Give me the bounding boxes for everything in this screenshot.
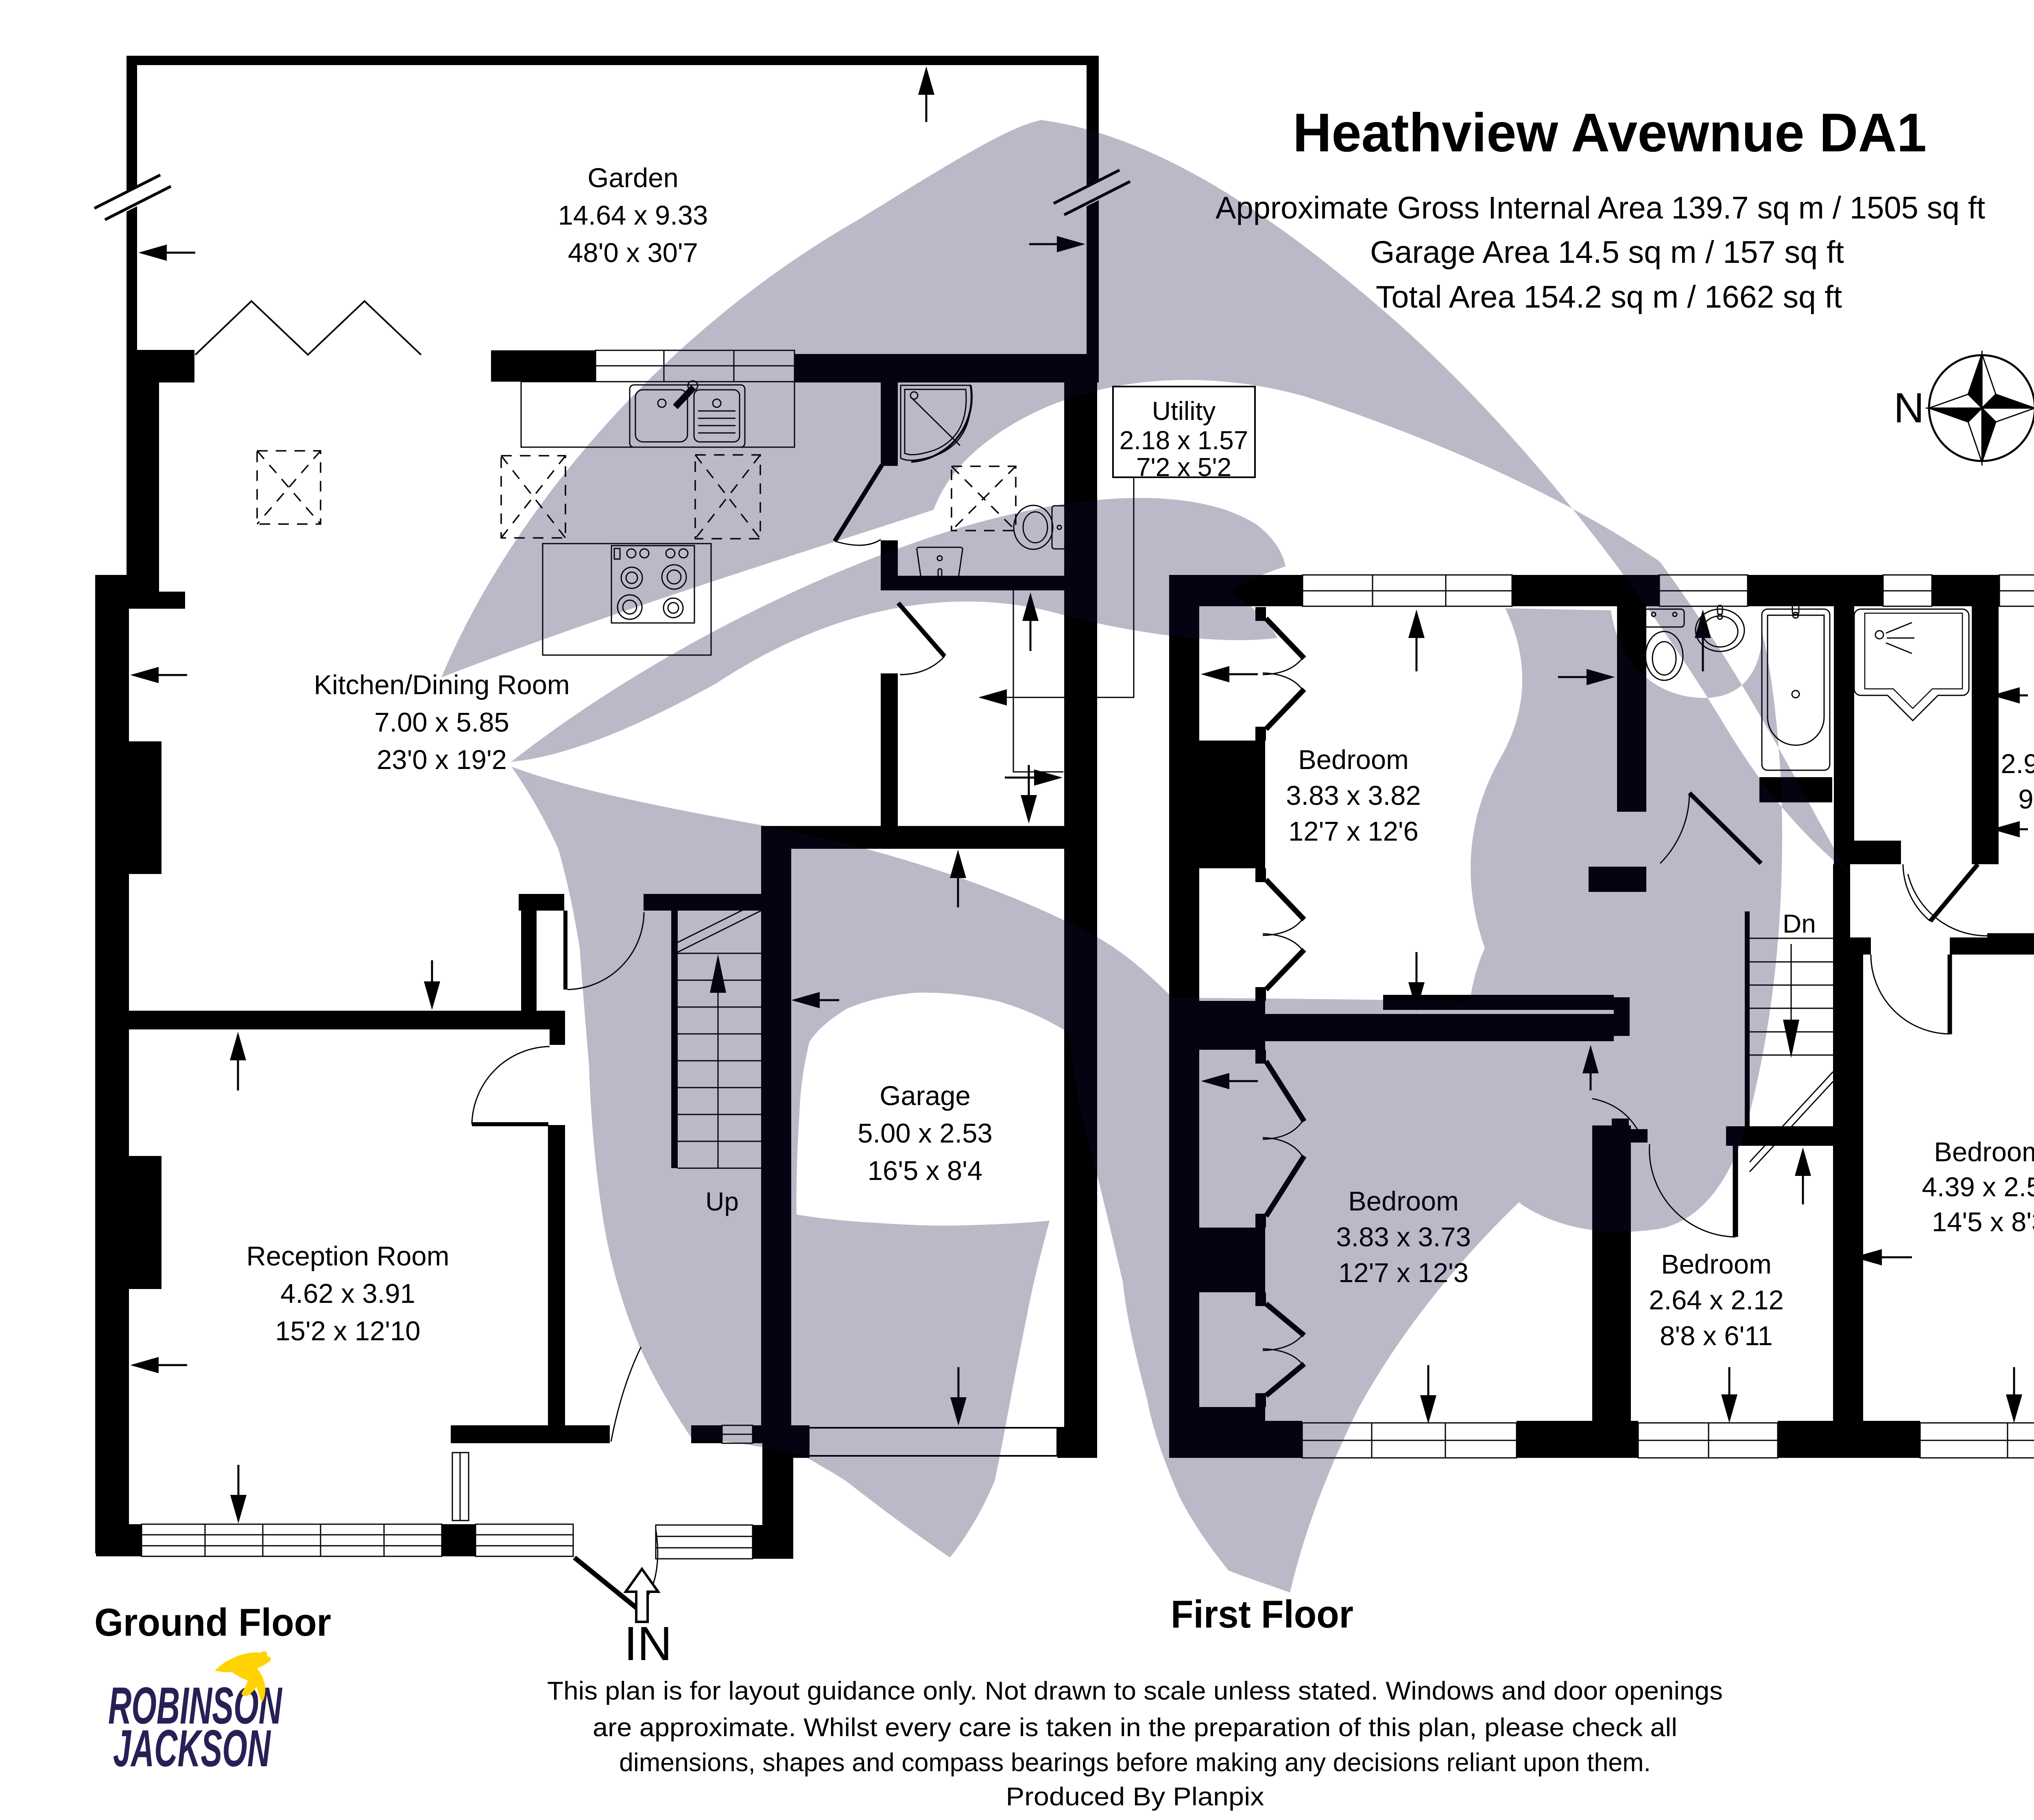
svg-text:7.00 x 5.85: 7.00 x 5.85 — [374, 707, 509, 738]
svg-text:Bedroom: Bedroom — [1298, 745, 1409, 775]
svg-text:This plan is for layout guidan: This plan is for layout guidance only. N… — [547, 1677, 1723, 1705]
svg-text:4.39 x 2.51: 4.39 x 2.51 — [1922, 1172, 2034, 1202]
svg-text:IN: IN — [624, 1617, 672, 1671]
svg-text:JACKSON: JACKSON — [113, 1719, 271, 1778]
svg-text:Ground Floor: Ground Floor — [94, 1601, 331, 1644]
svg-text:14.64 x 9.33: 14.64 x 9.33 — [558, 200, 708, 231]
svg-text:Utility: Utility — [1152, 396, 1216, 426]
svg-text:Garden: Garden — [587, 163, 678, 193]
svg-text:2.97 x 1.40: 2.97 x 1.40 — [2001, 749, 2034, 779]
svg-text:Total Area 154.2 sq m / 1662 s: Total Area 154.2 sq m / 1662 sq ft — [1376, 280, 1842, 315]
svg-text:dimensions, shapes and compass: dimensions, shapes and compass bearings … — [619, 1748, 1651, 1777]
svg-text:Bedroom: Bedroom — [1661, 1249, 1772, 1280]
svg-text:7'2 x 5'2: 7'2 x 5'2 — [1136, 452, 1231, 482]
svg-text:Garage Area 14.5 sq m / 157 sq: Garage Area 14.5 sq m / 157 sq ft — [1370, 235, 1844, 270]
svg-text:8'8 x 6'11: 8'8 x 6'11 — [1660, 1321, 1773, 1351]
svg-text:9'9 x 4'7: 9'9 x 4'7 — [2018, 784, 2034, 815]
svg-text:23'0 x 19'2: 23'0 x 19'2 — [377, 745, 507, 775]
svg-text:Produced By Planpix: Produced By Planpix — [1006, 1783, 1264, 1811]
svg-text:are approximate. Whilst every: are approximate. Whilst every care is ta… — [593, 1713, 1677, 1742]
svg-text:Bedroom: Bedroom — [1934, 1137, 2034, 1167]
svg-text:2.18 x 1.57: 2.18 x 1.57 — [1120, 426, 1248, 455]
svg-text:2.64 x 2.12: 2.64 x 2.12 — [1649, 1285, 1784, 1315]
svg-text:14'5 x 8'3: 14'5 x 8'3 — [1932, 1207, 2034, 1237]
svg-text:4.62 x 3.91: 4.62 x 3.91 — [280, 1278, 415, 1309]
svg-text:Kitchen/Dining Room: Kitchen/Dining Room — [314, 670, 570, 700]
svg-text:N: N — [1894, 385, 1924, 432]
svg-text:Garage: Garage — [880, 1081, 970, 1111]
svg-text:3.83 x 3.82: 3.83 x 3.82 — [1286, 780, 1421, 811]
svg-text:12'7 x 12'6: 12'7 x 12'6 — [1288, 816, 1419, 847]
svg-text:5.00 x 2.53: 5.00 x 2.53 — [858, 1118, 993, 1149]
svg-text:First Floor: First Floor — [1171, 1593, 1353, 1636]
svg-text:Dn: Dn — [1783, 909, 1816, 938]
svg-text:Heathview Avewnue DA1: Heathview Avewnue DA1 — [1293, 103, 1927, 163]
svg-text:Reception Room: Reception Room — [246, 1241, 449, 1272]
svg-text:15'2 x 12'10: 15'2 x 12'10 — [275, 1316, 420, 1346]
svg-text:16'5 x 8'4: 16'5 x 8'4 — [868, 1156, 983, 1186]
svg-text:Approximate Gross Internal Are: Approximate Gross Internal Area 139.7 sq… — [1216, 190, 1985, 225]
svg-text:48'0 x 30'7: 48'0 x 30'7 — [568, 238, 698, 268]
